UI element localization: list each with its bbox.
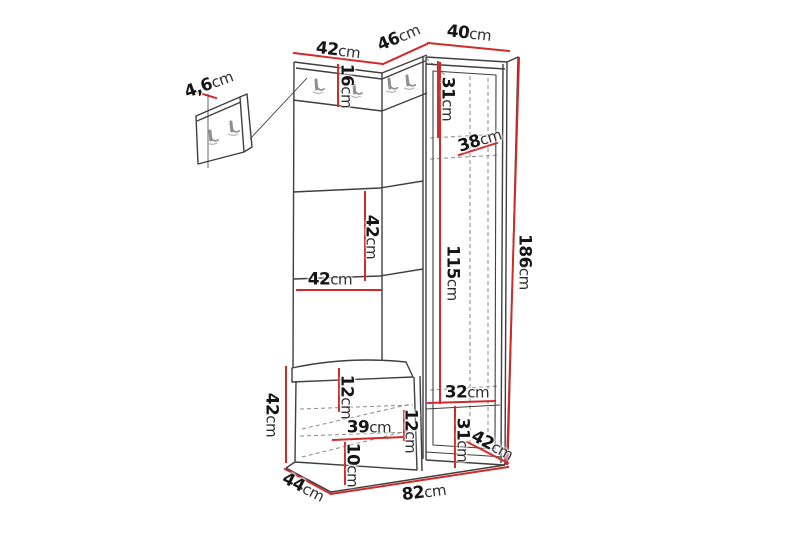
coat-hook-icon [385,78,398,93]
dimension-lines [196,43,519,494]
main-unit-outline [293,55,518,465]
dimline-total-height [507,58,519,464]
dimline-bench-depth [285,469,331,494]
furniture-dimension-diagram: 42cm46cm40cm16cm4,6cm31cm38cm42cm42cm115… [0,0,800,533]
coat-hook-icon [403,75,416,90]
coat-hook-icon [350,83,362,97]
dimline-top-left-section-width [294,53,383,64]
dimline-wardrobe-lower-shelf-width [428,401,495,403]
coat-hook-icon [227,121,240,135]
dimline-bench-compartment-width [333,437,403,440]
wall-hook-panel [196,78,307,168]
dimline-total-width [331,467,508,494]
line-drawing [0,0,800,533]
coat-hook-icon [312,79,324,93]
dimline-wall-panel-thickness [196,92,216,98]
hidden-edge-lines [300,58,500,457]
dimline-top-corner-section-width [383,44,427,64]
dimline-wardrobe-upper-shelf-depth [459,143,497,155]
dimline-top-wardrobe-width [428,43,509,51]
